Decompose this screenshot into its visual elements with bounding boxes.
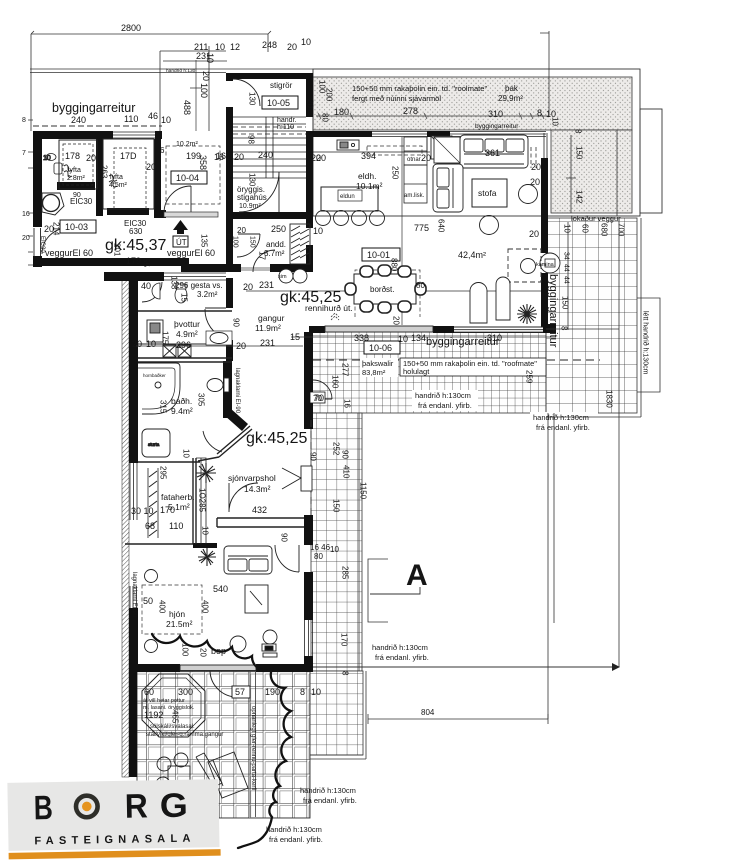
svg-text:394: 394 (361, 151, 376, 161)
svg-text:680: 680 (600, 223, 609, 237)
svg-text:20: 20 (316, 153, 326, 163)
svg-text:10: 10 (563, 224, 572, 233)
svg-text:byggingarreitur: byggingarreitur (52, 101, 135, 115)
svg-text:90: 90 (73, 192, 81, 199)
svg-text:16: 16 (214, 152, 224, 162)
svg-text:278: 278 (403, 106, 418, 116)
svg-text:15: 15 (290, 332, 300, 342)
svg-text:138: 138 (170, 276, 179, 290)
svg-text:201: 201 (113, 243, 122, 257)
svg-text:stigrör: stigrör (270, 81, 293, 90)
svg-text:stigahús: stigahús (237, 193, 267, 202)
svg-text:10.9m²: 10.9m² (239, 203, 261, 210)
svg-text:90: 90 (309, 452, 318, 461)
svg-text:29,9m²: 29,9m² (498, 94, 523, 103)
svg-text:20: 20 (237, 226, 246, 235)
svg-text:57: 57 (235, 687, 245, 697)
svg-text:opnanlegt gler-rennu-parta-ker: opnanlegt gler-rennu-parta-kerfi (250, 706, 256, 790)
svg-text:10: 10 (330, 545, 339, 554)
svg-text:142: 142 (575, 190, 584, 204)
svg-text:þak: þak (505, 84, 519, 93)
svg-text:veggurEl 60: veggurEl 60 (45, 248, 93, 258)
svg-text:þakswalir: þakswalir (362, 359, 394, 368)
svg-text:20: 20 (132, 339, 142, 349)
svg-text:frá endanl. yfirb.: frá endanl. yfirb. (536, 423, 590, 432)
svg-text:248: 248 (262, 40, 277, 50)
svg-text:488: 488 (182, 100, 192, 115)
svg-text:400: 400 (201, 600, 210, 614)
svg-text:160: 160 (331, 375, 340, 389)
svg-text:20: 20 (86, 153, 96, 163)
svg-text:baðh.: baðh. (171, 396, 192, 406)
svg-text:fergt með núinni sjávarmöl: fergt með núinni sjávarmöl (352, 94, 441, 103)
svg-text:handr.: handr. (277, 117, 297, 124)
svg-text:8: 8 (341, 671, 350, 676)
svg-text:handrið h:130cm: handrið h:130cm (415, 391, 471, 400)
svg-text:296: 296 (176, 340, 191, 350)
svg-text:175: 175 (161, 331, 170, 345)
svg-text:338: 338 (354, 333, 369, 343)
svg-text:handrið h:130: handrið h:130 (166, 67, 196, 74)
svg-text:20: 20 (22, 235, 30, 242)
svg-text:15: 15 (180, 293, 189, 302)
svg-text:134: 134 (411, 333, 426, 343)
svg-text:295: 295 (159, 466, 168, 480)
svg-text:4.9m²: 4.9m² (176, 329, 198, 339)
svg-text:frá endanl. yfirb.: frá endanl. yfirb. (269, 835, 323, 844)
svg-text:16 46: 16 46 (310, 543, 331, 552)
svg-text:135: 135 (200, 234, 209, 248)
svg-text:17D: 17D (120, 151, 137, 161)
svg-text:20: 20 (199, 648, 208, 657)
svg-text:1830: 1830 (605, 390, 614, 408)
svg-text:80: 80 (314, 552, 323, 561)
svg-text:10: 10 (398, 334, 408, 344)
svg-text:231: 231 (259, 280, 274, 290)
svg-text:400: 400 (158, 600, 167, 614)
svg-text:179: 179 (126, 256, 141, 266)
svg-text:handrið h:130cm: handrið h:130cm (300, 786, 356, 795)
svg-text:8: 8 (560, 326, 569, 331)
svg-text:sim: sim (278, 274, 287, 280)
svg-text:12: 12 (230, 42, 240, 52)
svg-text:gk:45,25: gk:45,25 (246, 430, 307, 447)
svg-text:10.1m²: 10.1m² (356, 181, 383, 191)
svg-text:eldh.: eldh. (358, 171, 376, 181)
svg-text:20: 20 (306, 99, 315, 108)
svg-text:10: 10 (301, 37, 311, 47)
svg-text:252: 252 (332, 442, 341, 456)
svg-text:R: R (124, 787, 148, 825)
svg-text:byggingarreitur: byggingarreitur (475, 123, 519, 130)
svg-text:sólskáli/svalasal.: sólskáli/svalasal. (150, 724, 195, 730)
svg-text:otnar: otnar (407, 157, 421, 163)
svg-text:60: 60 (144, 687, 154, 697)
svg-text:frá endanl. yfirb.: frá endanl. yfirb. (375, 653, 429, 662)
svg-text:stál/viki/gler-g.ramma.gangur: stál/viki/gler-g.ramma.gangur (146, 732, 223, 738)
svg-text:150: 150 (332, 499, 341, 513)
svg-text:55: 55 (142, 258, 151, 267)
svg-text:361: 361 (485, 148, 500, 158)
svg-text:10-04: 10-04 (176, 173, 199, 183)
svg-text:10: 10 (182, 449, 191, 458)
svg-text:178: 178 (65, 151, 80, 161)
svg-text:14.3m²: 14.3m² (244, 484, 271, 494)
svg-text:80: 80 (416, 281, 425, 290)
svg-text:10-06: 10-06 (369, 343, 392, 353)
svg-text:640: 640 (437, 219, 446, 233)
svg-text:frá endanl. yfirb.: frá endanl. yfirb. (418, 401, 472, 410)
svg-text:lagnaklarni EI-90: lagnaklarni EI-90 (234, 368, 240, 414)
svg-text:296 gesta vs.: 296 gesta vs. (175, 281, 223, 290)
svg-text:10: 10 (205, 53, 215, 63)
svg-text:kamina: kamina (536, 262, 555, 268)
svg-text:100: 100 (232, 236, 239, 248)
svg-text:20: 20 (201, 71, 211, 81)
svg-text:handrið h:130cm: handrið h:130cm (533, 413, 589, 422)
svg-text:42,4m²: 42,4m² (458, 250, 486, 260)
svg-text:EIC30: EIC30 (39, 236, 45, 253)
svg-text:1150: 1150 (359, 482, 368, 500)
svg-text:lokaður veggur: lokaður veggur (571, 214, 621, 223)
svg-text:lyfta: lyfta (110, 174, 123, 181)
svg-text:20: 20 (243, 282, 253, 292)
svg-text:285: 285 (341, 566, 350, 580)
svg-text:10: 10 (201, 526, 210, 535)
svg-text:240: 240 (258, 150, 273, 160)
svg-text:150: 150 (575, 146, 584, 160)
svg-text:létt handrið h:130cm: létt handrið h:130cm (642, 311, 650, 375)
svg-text:83,8m²: 83,8m² (362, 368, 386, 377)
svg-text:170: 170 (160, 505, 175, 515)
svg-text:130: 130 (248, 92, 257, 106)
svg-text:rennihurð út.: rennihurð út. (305, 303, 353, 313)
svg-text:231: 231 (260, 338, 275, 348)
svg-text:hjón: hjón (169, 609, 185, 619)
svg-text:hornbaðker: hornbaðker (143, 372, 166, 378)
svg-text:46: 46 (148, 111, 158, 121)
svg-text:stofa: stofa (478, 188, 497, 198)
svg-text:20: 20 (234, 152, 244, 162)
svg-text:A: A (406, 559, 428, 592)
svg-text:10: 10 (311, 687, 321, 697)
svg-text:540: 540 (213, 584, 228, 594)
svg-text:handrið h:130cm: handrið h:130cm (372, 643, 428, 652)
svg-text:465: 465 (171, 710, 180, 724)
svg-text:44: 44 (563, 264, 570, 272)
svg-text:98: 98 (247, 135, 256, 144)
svg-text:250: 250 (391, 166, 400, 180)
svg-text:880: 880 (390, 258, 399, 272)
svg-text:16: 16 (343, 399, 352, 408)
svg-text:90: 90 (232, 318, 241, 327)
svg-text:6: 6 (160, 146, 165, 155)
svg-text:B: B (33, 789, 53, 827)
svg-text:10.2m²: 10.2m² (176, 141, 198, 148)
svg-text:410: 410 (342, 465, 351, 479)
svg-text:10-03: 10-03 (65, 222, 88, 232)
svg-text:263: 263 (100, 165, 109, 179)
svg-text:20: 20 (392, 316, 401, 325)
svg-text:315: 315 (159, 400, 168, 414)
svg-text:2.8m²: 2.8m² (67, 175, 86, 182)
svg-text:20: 20 (531, 162, 541, 172)
svg-text:190: 190 (265, 687, 280, 697)
svg-text:sjónvarpshol: sjónvarpshol (228, 473, 276, 483)
svg-text:310: 310 (487, 333, 502, 343)
svg-text:veggurEl 60: veggurEl 60 (167, 248, 215, 258)
svg-text:byggingarreitur: byggingarreitur (547, 274, 559, 348)
svg-text:9.4m²: 9.4m² (171, 406, 193, 416)
svg-text:h:110: h:110 (277, 124, 294, 131)
svg-text:lagnaklarni EI-90: lagnaklarni EI-90 (131, 572, 137, 618)
svg-text:30 10: 30 10 (131, 506, 154, 516)
svg-text:17: 17 (258, 251, 267, 260)
svg-text:holulagt: holulagt (403, 367, 430, 376)
svg-text:90: 90 (280, 533, 289, 542)
svg-text:432: 432 (252, 505, 267, 515)
svg-text:250: 250 (271, 224, 286, 234)
svg-text:804: 804 (421, 708, 435, 717)
svg-text:1192: 1192 (144, 710, 163, 720)
svg-text:EIC30: EIC30 (225, 234, 231, 251)
svg-text:40: 40 (141, 281, 151, 291)
svg-text:fataherb.: fataherb. (161, 492, 195, 502)
svg-text:10-05: 10-05 (267, 98, 290, 108)
svg-text:90: 90 (341, 450, 350, 459)
svg-text:110: 110 (169, 521, 183, 531)
svg-text:180: 180 (334, 107, 349, 117)
svg-text:70: 70 (314, 393, 324, 403)
svg-text:310: 310 (488, 109, 503, 119)
svg-text:4.5m²: 4.5m² (109, 182, 128, 189)
svg-text:700: 700 (617, 223, 626, 237)
svg-text:10: 10 (215, 42, 225, 52)
svg-text:34: 34 (563, 252, 570, 260)
svg-text:7: 7 (22, 150, 26, 157)
svg-text:110: 110 (124, 114, 138, 124)
svg-text:10: 10 (551, 117, 560, 126)
svg-text:am.lisk.: am.lisk. (404, 193, 425, 199)
svg-text:20: 20 (530, 177, 540, 187)
svg-text:150: 150 (249, 236, 256, 248)
svg-text:10: 10 (43, 155, 51, 162)
svg-text:44: 44 (563, 276, 570, 284)
svg-text:11.9m²: 11.9m² (255, 323, 281, 333)
svg-text:1Ö285: 1Ö285 (198, 488, 207, 513)
svg-text:305: 305 (197, 393, 206, 407)
svg-text:sturta: sturta (148, 442, 160, 447)
svg-text:50: 50 (143, 596, 153, 606)
svg-text:214: 214 (52, 222, 61, 236)
svg-text:775: 775 (414, 223, 429, 233)
svg-text:20: 20 (236, 341, 246, 351)
svg-text:68: 68 (145, 521, 155, 531)
svg-text:60: 60 (581, 224, 590, 233)
svg-text:8: 8 (574, 129, 583, 134)
svg-text:10: 10 (146, 339, 156, 349)
svg-text:10-01: 10-01 (367, 250, 390, 260)
svg-text:3.2m²: 3.2m² (197, 290, 218, 299)
svg-text:80: 80 (321, 113, 330, 122)
svg-text:lyfta: lyfta (68, 167, 81, 174)
svg-text:10: 10 (161, 115, 171, 125)
svg-text:277: 277 (341, 363, 350, 377)
svg-text:16: 16 (22, 211, 30, 218)
svg-text:100: 100 (199, 83, 209, 98)
svg-text:240: 240 (71, 115, 86, 125)
svg-text:20: 20 (287, 42, 297, 52)
svg-text:630: 630 (129, 227, 143, 236)
svg-text:21.5m²: 21.5m² (166, 619, 193, 629)
svg-text:358: 358 (198, 155, 208, 170)
svg-text:G: G (159, 787, 188, 825)
svg-text:borðst.: borðst. (370, 285, 394, 294)
svg-text:andd.: andd. (266, 240, 286, 249)
svg-text:át vill heiar pottur: át vill heiar pottur (143, 698, 185, 704)
svg-text:170: 170 (340, 633, 349, 647)
svg-text:ÚT: ÚT (176, 238, 187, 247)
svg-text:gangur: gangur (258, 313, 285, 323)
svg-text:200: 200 (325, 88, 334, 102)
svg-text:10: 10 (313, 226, 323, 236)
svg-text:eldun: eldun (340, 194, 355, 200)
svg-text:2800: 2800 (121, 23, 141, 33)
svg-text:300: 300 (178, 687, 193, 697)
svg-text:20: 20 (146, 162, 156, 172)
svg-text:259: 259 (525, 370, 534, 384)
svg-text:20: 20 (421, 153, 431, 163)
svg-text:20: 20 (529, 229, 539, 239)
svg-text:8: 8 (22, 117, 26, 124)
svg-text:150+50 mm rakaþolin ein. td. ": 150+50 mm rakaþolin ein. td. "roolmate" (352, 84, 487, 93)
svg-text:þvottur: þvottur (174, 319, 200, 329)
svg-text:handrið h:130cm: handrið h:130cm (266, 825, 322, 834)
svg-text:frá endanl. yfirb.: frá endanl. yfirb. (303, 796, 357, 805)
svg-text:3.7m²: 3.7m² (264, 249, 285, 258)
svg-text:8: 8 (300, 687, 305, 697)
